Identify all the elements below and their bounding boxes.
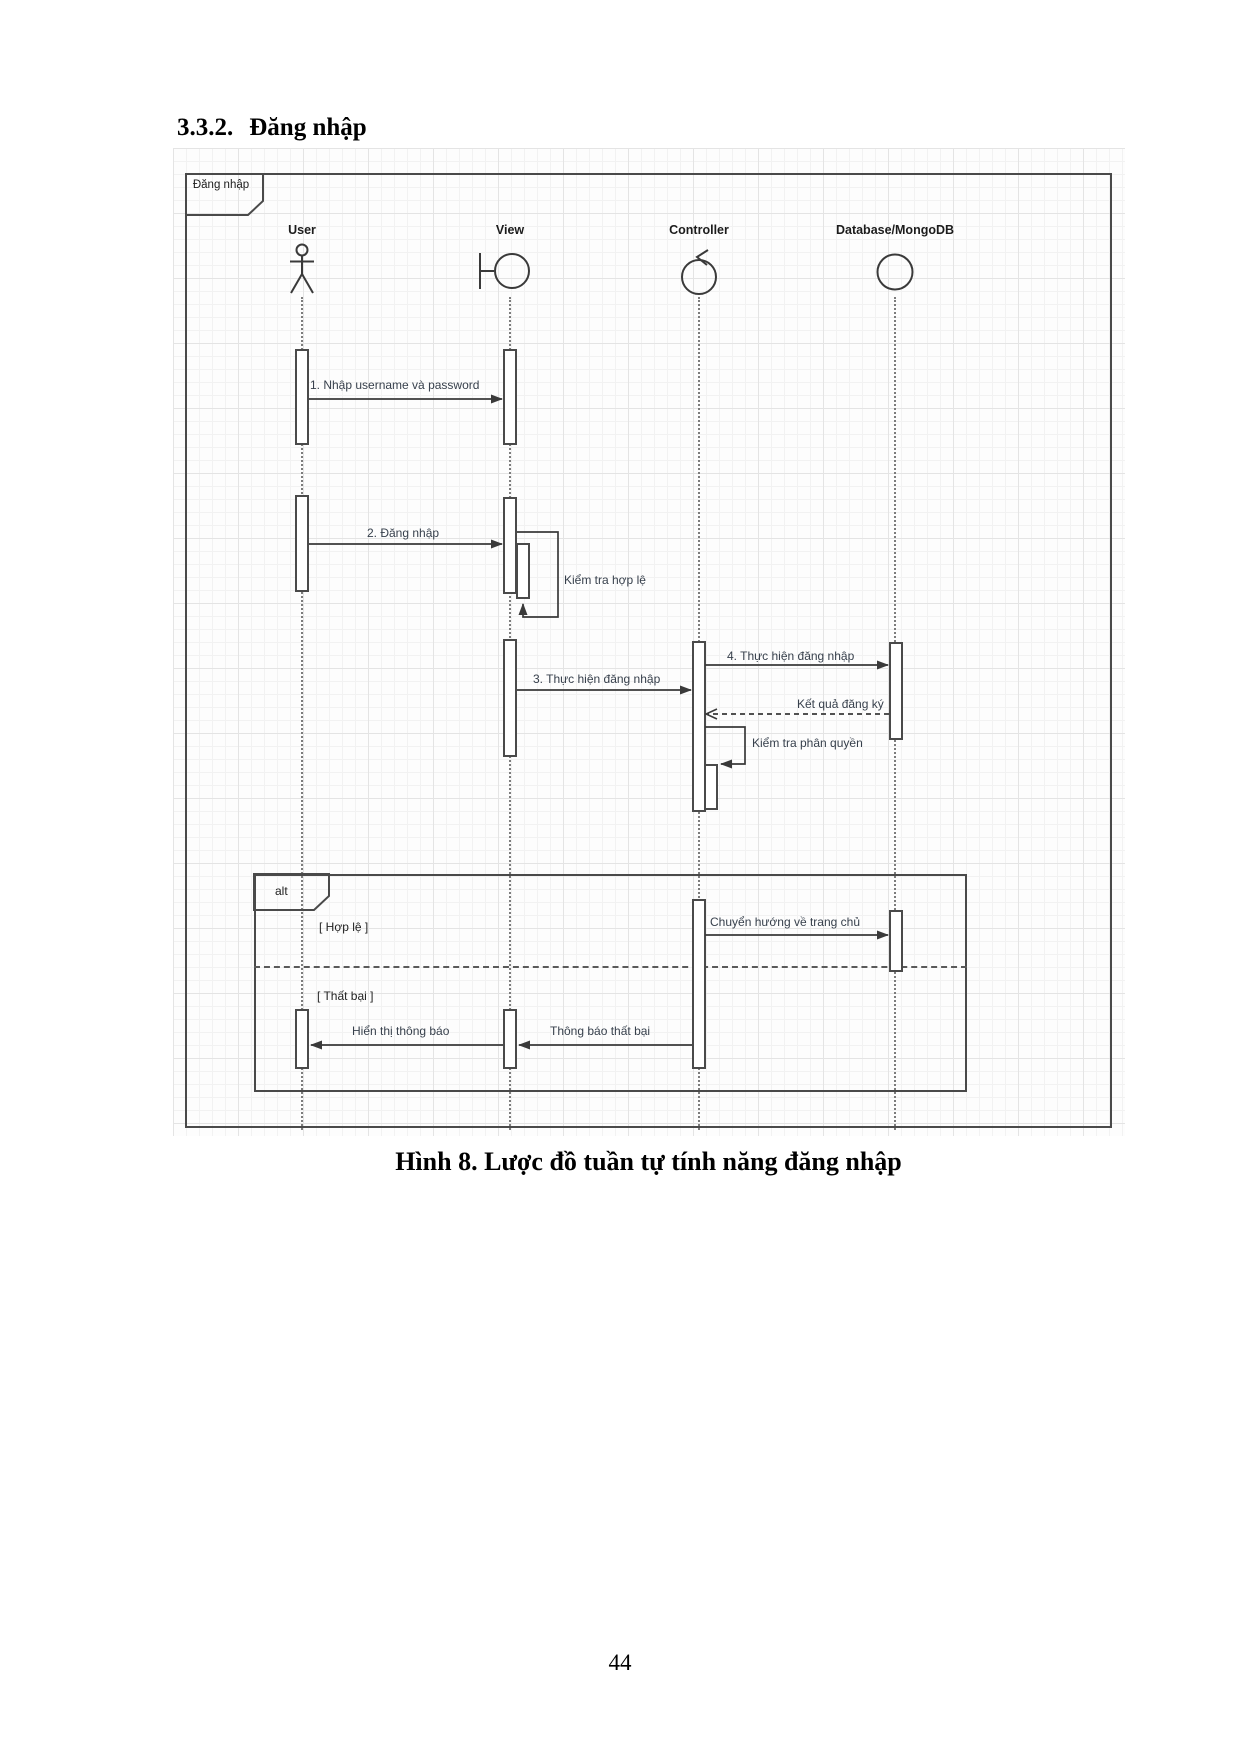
activation-bar-view-self (516, 543, 530, 599)
alt-divider (254, 966, 967, 968)
actor-icon (287, 243, 317, 297)
activation-bar-controller-2 (692, 899, 706, 1069)
message-label-fail-notice: Thông báo thất bại (550, 1024, 650, 1038)
message-label-check-valid: Kiểm tra hợp lệ (564, 573, 646, 587)
activation-bar-controller-self (704, 764, 718, 810)
document-page: { "page": { "heading_number": "3.3.2.", … (0, 0, 1240, 1754)
message-label-show-notice: Hiển thị thông báo (352, 1024, 449, 1038)
message-label-return-result: Kết quả đăng ký (797, 697, 884, 711)
page-number: 44 (0, 1650, 1240, 1676)
section-title: Đăng nhập (249, 114, 366, 141)
lifeline-label-view: View (496, 223, 524, 237)
control-icon (675, 245, 723, 299)
section-number: 3.3.2. (177, 114, 233, 141)
message-label-m4: 4. Thực hiện đăng nhập (727, 649, 854, 663)
figure-caption: Hình 8. Lược đồ tuần tự tính năng đăng n… (185, 1147, 1112, 1177)
activation-bar-user-1 (295, 349, 309, 445)
activation-bar-user-3 (295, 1009, 309, 1069)
boundary-icon (477, 247, 539, 295)
activation-bar-database-2 (889, 910, 903, 972)
alt-label-pentagon-icon (253, 873, 333, 913)
frame-title: Đăng nhập (189, 176, 253, 216)
lifeline-label-database: Database/MongoDB (836, 223, 954, 237)
message-label-m2: 2. Đăng nhập (367, 526, 439, 540)
activation-bar-view-4 (503, 1009, 517, 1069)
arrow-self-check-permission (705, 727, 745, 764)
alt-operator-label: alt (275, 884, 288, 898)
activation-bar-view-2 (503, 497, 517, 594)
alt-fragment (254, 874, 967, 1092)
message-label-m1: 1. Nhập username và password (310, 378, 479, 392)
activation-bar-view-3 (503, 639, 517, 757)
sequence-diagram-frame: Đăng nhập User View Controller Database/… (185, 173, 1112, 1128)
lifeline-label-controller: Controller (669, 223, 729, 237)
guard-label-fail: [ Thất bại ] (317, 989, 373, 1003)
activation-bar-database-1 (889, 642, 903, 740)
message-label-m3: 3. Thực hiện đăng nhập (533, 672, 660, 686)
message-label-check-permission: Kiểm tra phân quyền (752, 736, 863, 750)
section-heading: 3.3.2.Đăng nhập (177, 114, 367, 142)
activation-bar-view-1 (503, 349, 517, 445)
lifeline-label-user: User (288, 223, 316, 237)
message-label-redirect: Chuyển hướng về trang chủ (710, 915, 860, 929)
entity-icon (872, 247, 918, 295)
activation-bar-user-2 (295, 495, 309, 592)
guard-label-valid: [ Hợp lệ ] (319, 920, 368, 934)
